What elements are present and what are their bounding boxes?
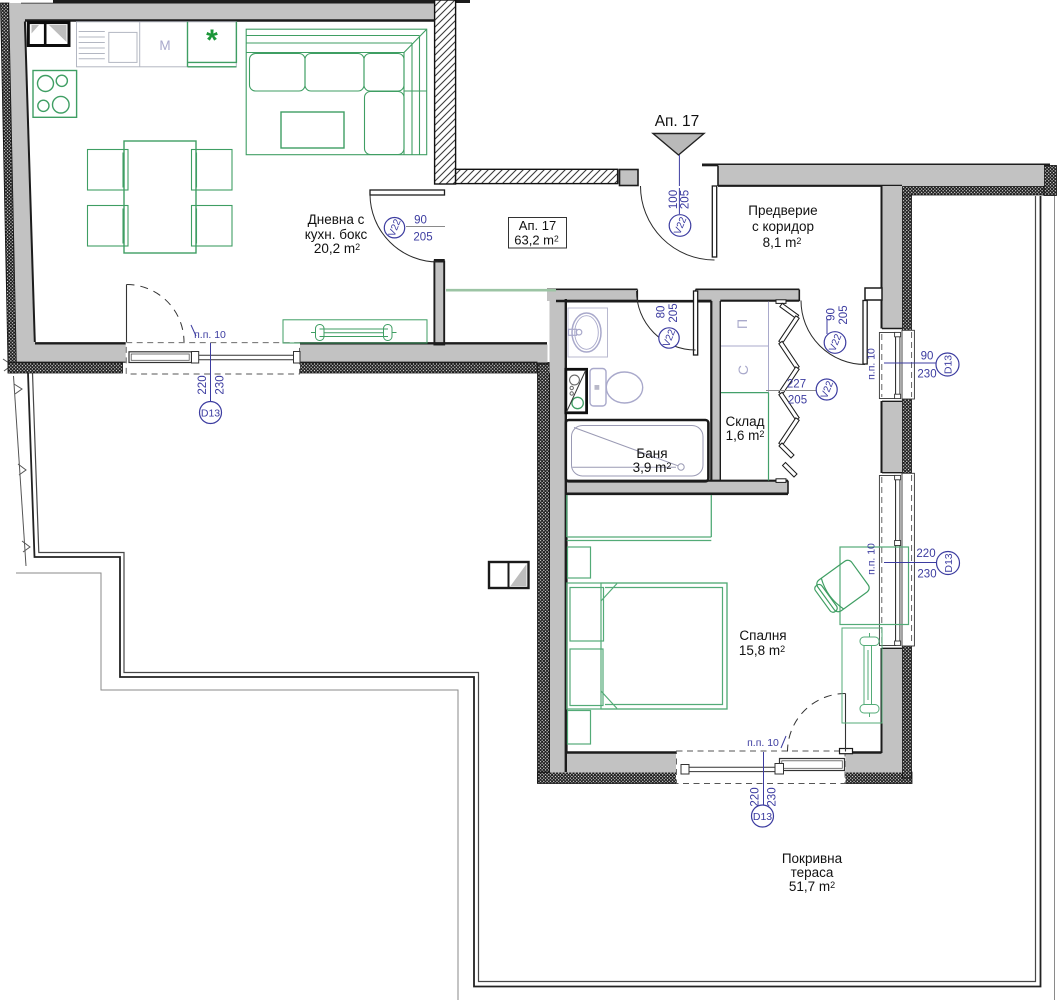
svg-text:Ап. 17: Ап. 17 [519, 218, 556, 233]
svg-text:D13: D13 [943, 553, 955, 572]
svg-text:п.п. 10: п.п. 10 [747, 737, 779, 749]
svg-text:п.п. 10: п.п. 10 [866, 348, 878, 380]
svg-text:230: 230 [917, 369, 936, 381]
svg-text:Склад: Склад [725, 414, 764, 429]
svg-text:с коридор: с коридор [752, 219, 814, 234]
svg-text:П: П [734, 319, 750, 329]
svg-text:Баня: Баня [636, 446, 667, 461]
svg-text:Дневна с: Дневна с [308, 212, 365, 227]
svg-text:п.п. 10: п.п. 10 [866, 543, 878, 575]
svg-text:63,2 m2: 63,2 m2 [514, 233, 559, 248]
svg-text:220: 220 [197, 375, 209, 394]
svg-text:Спалня: Спалня [739, 628, 786, 643]
svg-text:Ап. 17: Ап. 17 [655, 113, 700, 130]
svg-text:230: 230 [215, 375, 227, 394]
svg-text:D13: D13 [753, 811, 772, 823]
svg-text:227: 227 [787, 379, 806, 391]
svg-text:205: 205 [788, 395, 807, 407]
svg-text:230: 230 [917, 569, 936, 581]
svg-text:51,7 m2: 51,7 m2 [789, 879, 835, 894]
svg-text:тераса: тераса [791, 865, 834, 880]
svg-text:*: * [206, 24, 218, 57]
svg-text:1,6 m2: 1,6 m2 [726, 428, 765, 443]
svg-text:100: 100 [668, 190, 680, 209]
svg-text:M: M [159, 38, 170, 53]
svg-text:Предверие: Предверие [748, 203, 817, 218]
svg-text:205: 205 [668, 303, 680, 322]
svg-text:90: 90 [921, 351, 934, 363]
svg-text:205: 205 [413, 232, 432, 244]
svg-text:220: 220 [916, 548, 935, 560]
svg-text:20,2 m2: 20,2 m2 [314, 241, 360, 256]
svg-text:90: 90 [414, 215, 427, 227]
svg-text:80: 80 [656, 306, 668, 319]
svg-text:205: 205 [838, 305, 850, 324]
svg-text:кухн. бокс: кухн. бокс [305, 227, 368, 242]
svg-text:D13: D13 [201, 408, 220, 420]
svg-text:3,9 m2: 3,9 m2 [633, 460, 672, 475]
svg-text:205: 205 [680, 190, 692, 209]
svg-text:8,1 m2: 8,1 m2 [763, 235, 802, 250]
svg-text:15,8 m2: 15,8 m2 [739, 643, 785, 658]
svg-text:Покривна: Покривна [782, 851, 843, 866]
svg-text:п.п. 10: п.п. 10 [194, 329, 226, 341]
svg-text:D13: D13 [943, 355, 955, 374]
svg-text:220: 220 [750, 787, 762, 806]
svg-text:230: 230 [767, 787, 779, 806]
svg-text:С: С [735, 365, 751, 375]
svg-text:90: 90 [826, 308, 838, 321]
